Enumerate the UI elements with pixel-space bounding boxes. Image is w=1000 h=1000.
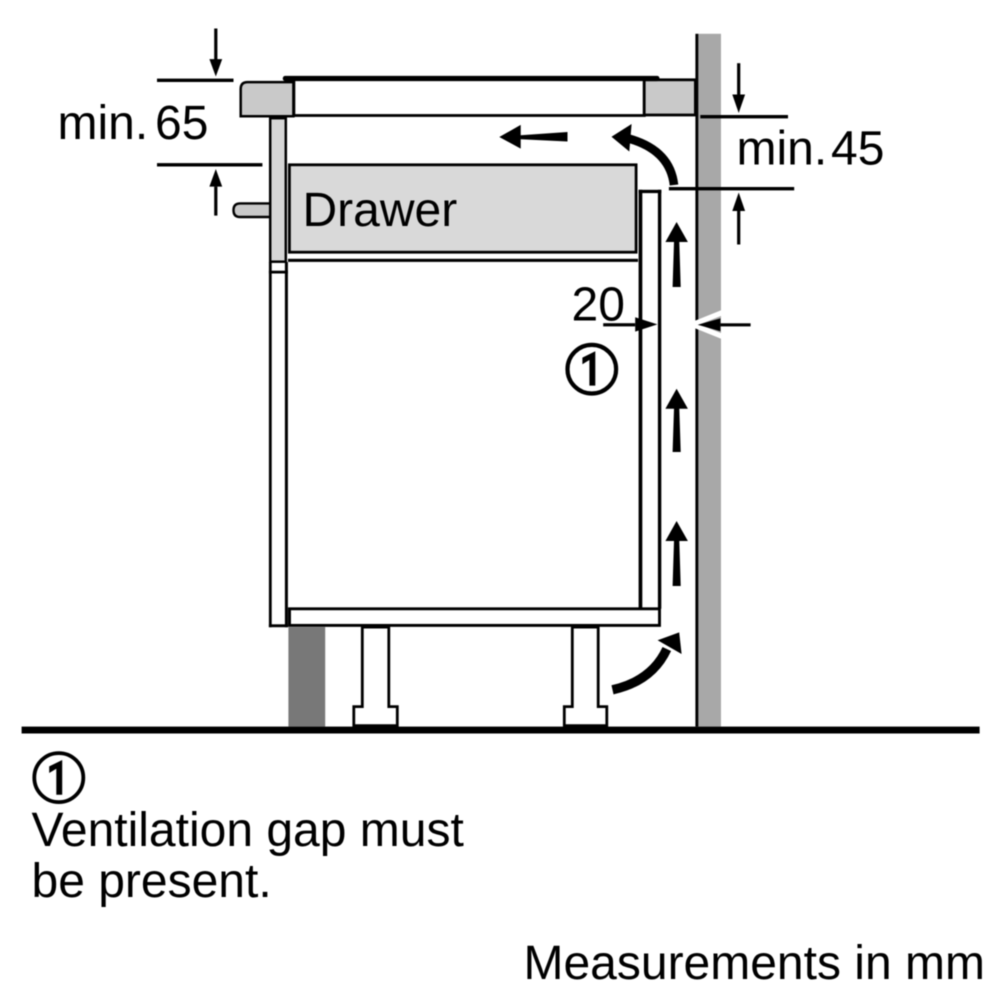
svg-text:65: 65 [155,97,208,150]
svg-text:Ventilation gap must: Ventilation gap must [32,804,464,857]
svg-text:be present.: be present. [32,855,272,908]
svg-text:Drawer: Drawer [303,184,458,237]
svg-text:min.: min. [58,97,149,150]
svg-text:min.: min. [737,123,828,176]
svg-text:45: 45 [831,123,884,176]
svg-text:Measurements in mm: Measurements in mm [524,937,985,990]
